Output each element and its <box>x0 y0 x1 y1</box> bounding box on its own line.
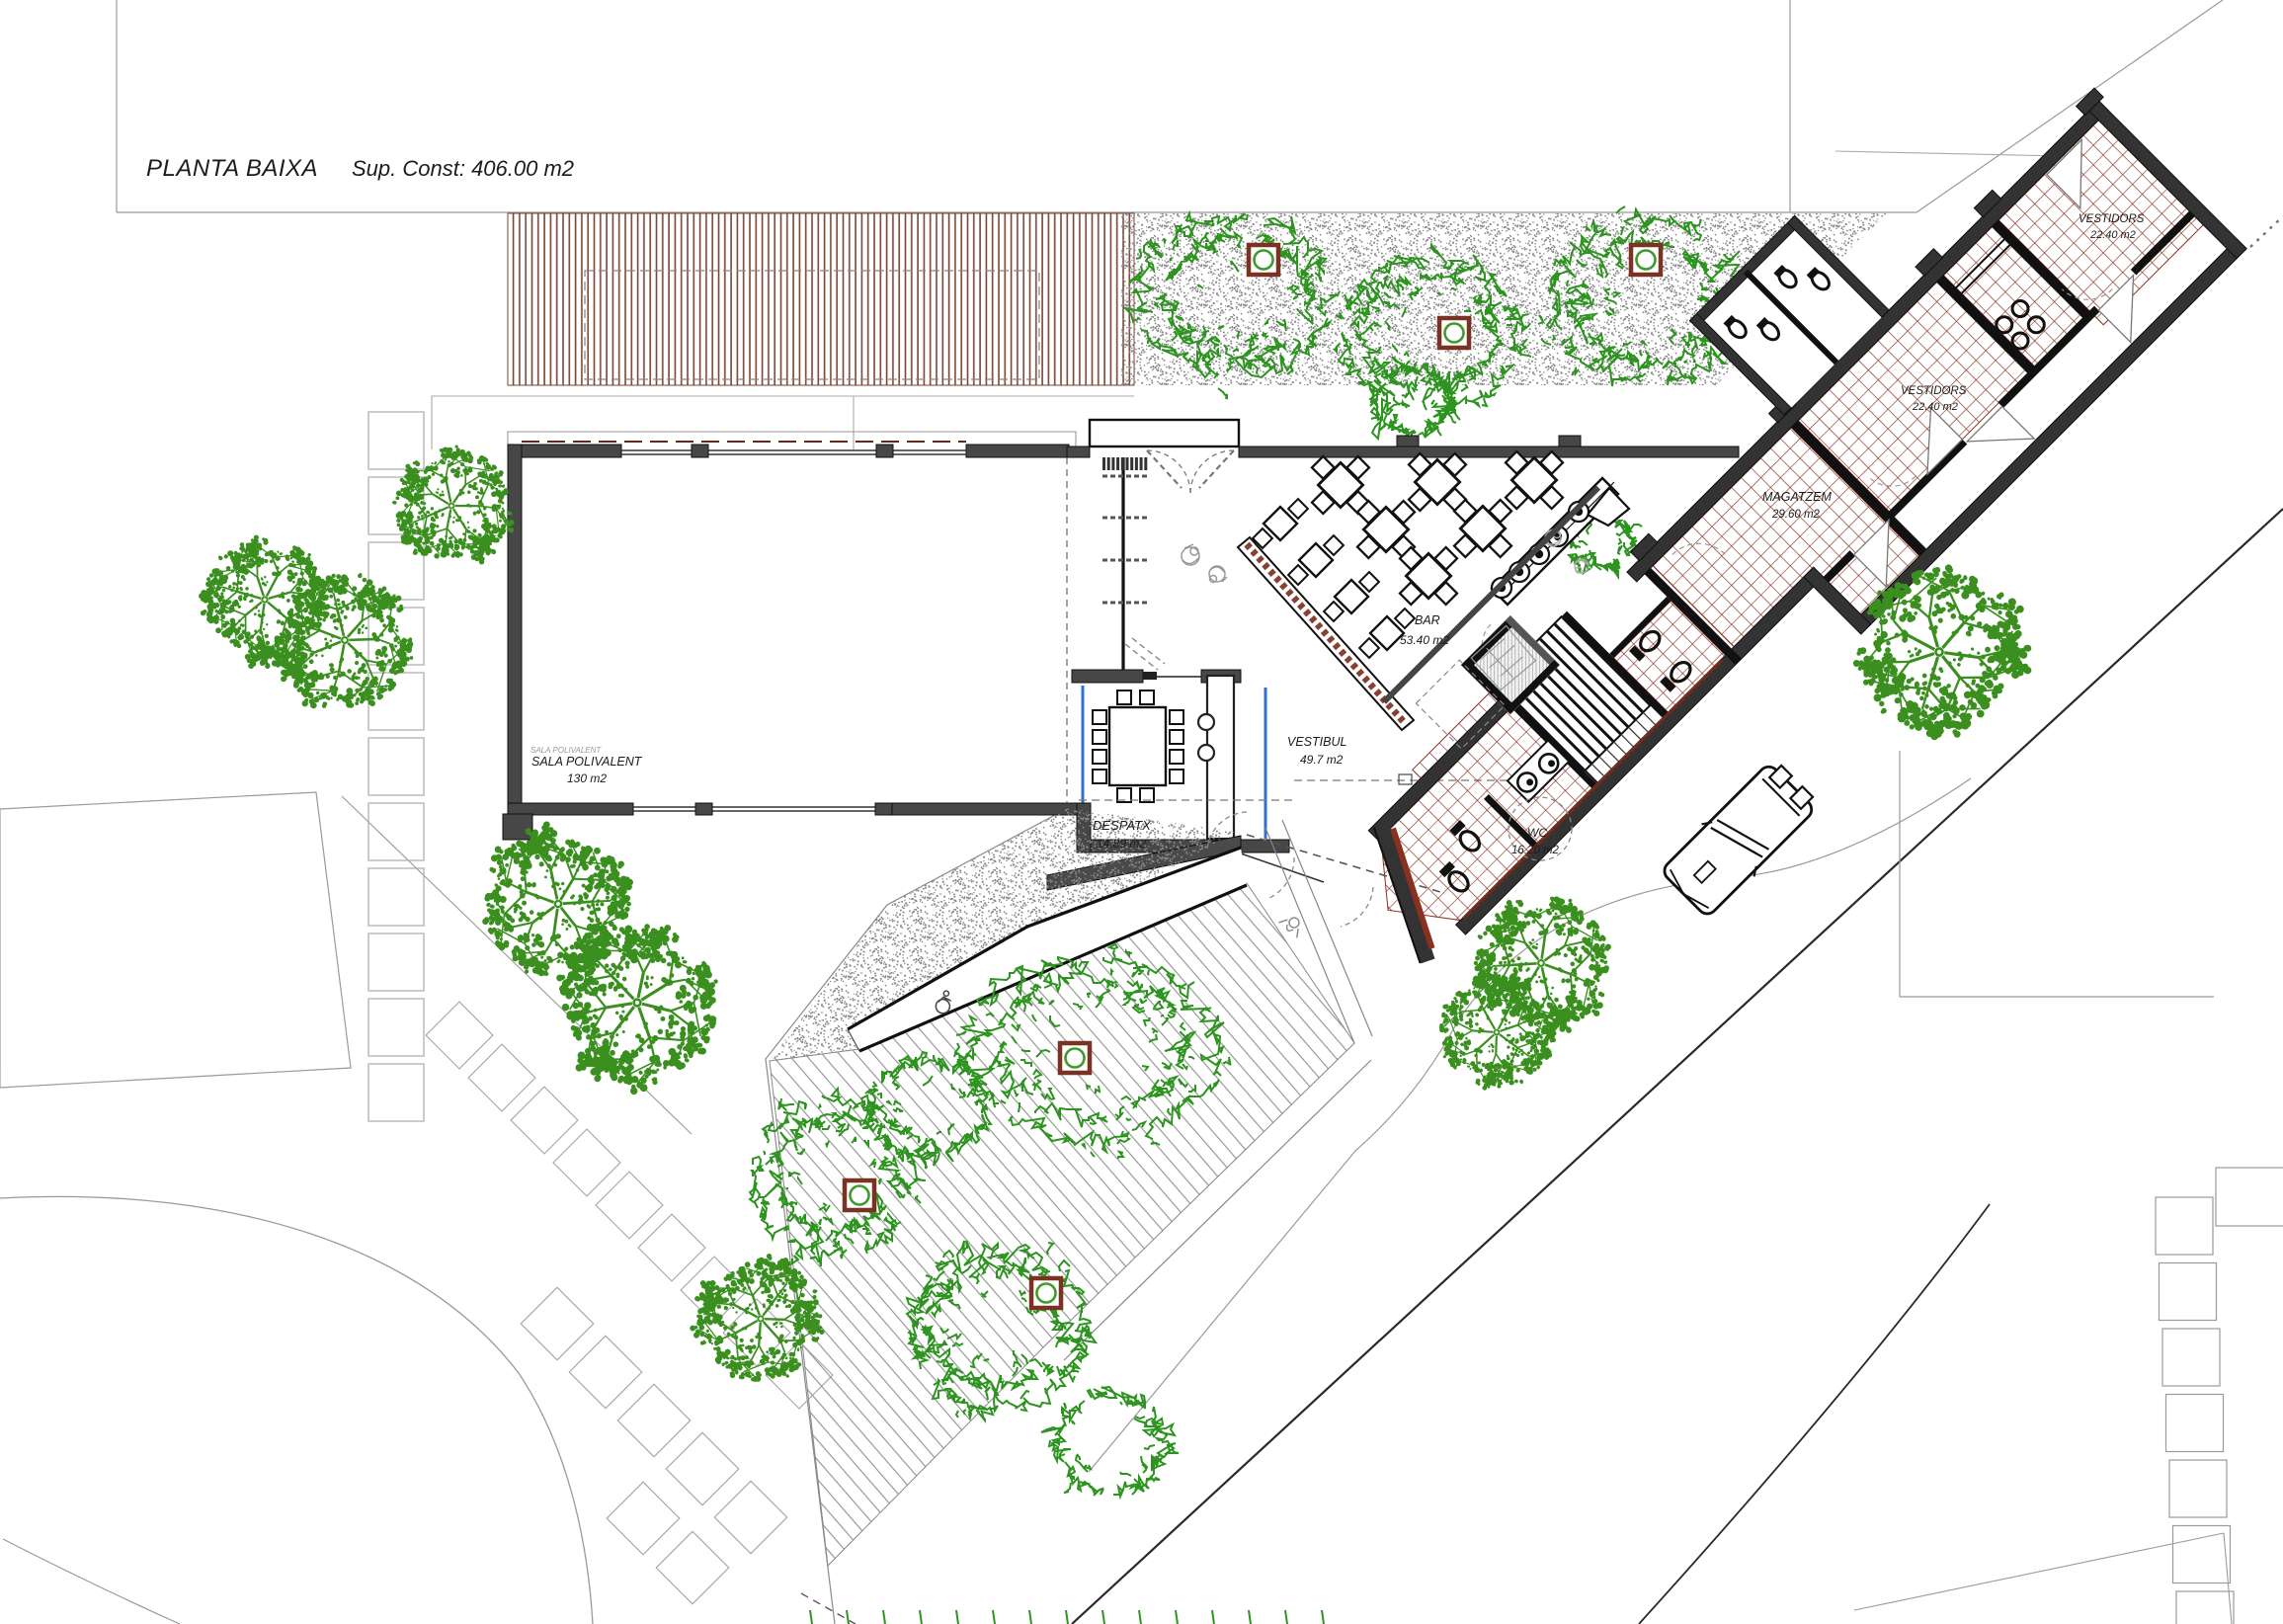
svg-text:22.40 m2: 22.40 m2 <box>2089 229 2136 241</box>
svg-text:VESTIDORS: VESTIDORS <box>1901 385 1967 397</box>
svg-text:VESTIDORS: VESTIDORS <box>2079 213 2145 225</box>
svg-text:SALA POLIVALENT: SALA POLIVALENT <box>530 746 602 755</box>
svg-text:SALA POLIVALENT: SALA POLIVALENT <box>531 755 643 769</box>
svg-text:130 m2: 130 m2 <box>567 771 607 785</box>
svg-text:VESTIBUL: VESTIBUL <box>1287 735 1346 749</box>
svg-text:16.20 m2: 16.20 m2 <box>1511 845 1560 856</box>
svg-text:29.60 m2: 29.60 m2 <box>1771 509 1821 521</box>
svg-text:MAGATZEM: MAGATZEM <box>1762 490 1832 504</box>
svg-text:49.7 m2: 49.7 m2 <box>1300 753 1344 767</box>
svg-text:BAR: BAR <box>1415 613 1440 627</box>
svg-text:14.89 m2: 14.89 m2 <box>1097 837 1146 851</box>
svg-text:DESPATX: DESPATX <box>1093 818 1152 833</box>
svg-text:WC: WC <box>1527 826 1547 840</box>
svg-text:PLANTA BAIXA: PLANTA BAIXA <box>146 155 318 182</box>
svg-text:53.40 m2: 53.40 m2 <box>1400 633 1449 647</box>
svg-text:Sup. Const: 406.00 m2: Sup. Const: 406.00 m2 <box>352 156 574 181</box>
svg-text:22.40 m2: 22.40 m2 <box>1912 401 1958 413</box>
